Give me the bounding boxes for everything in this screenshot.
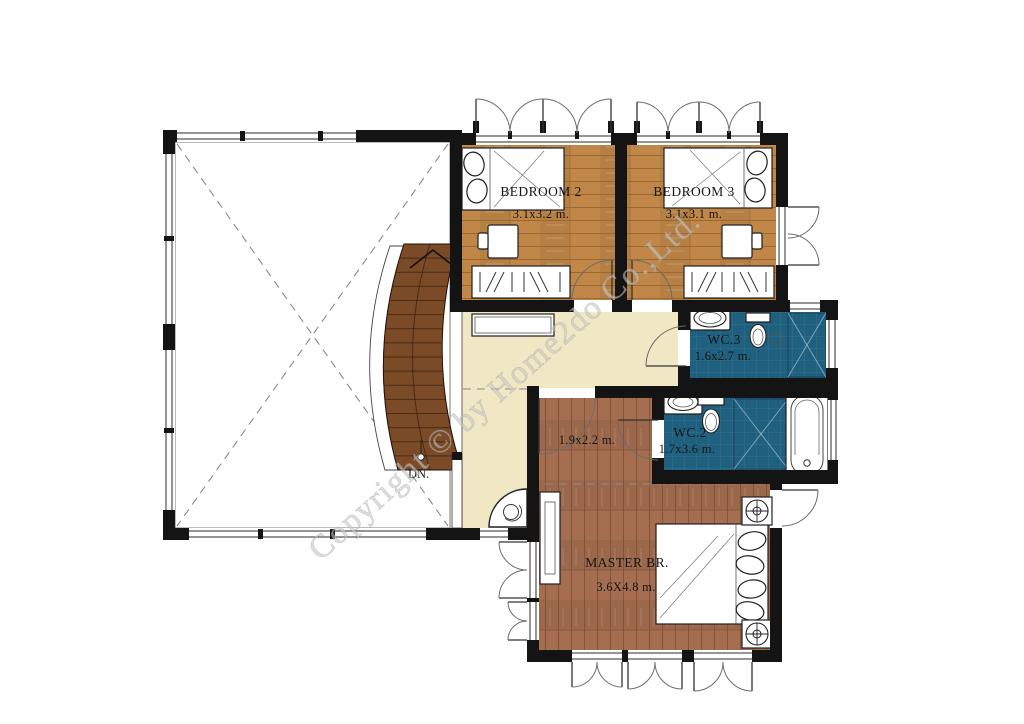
nightstand-lamp [742,620,772,648]
bedroom3-balcony-doors [788,207,819,265]
bed2-desk [488,225,518,258]
bed3-chair [752,233,762,249]
wc2-dims: 1.7x3.6 m. [659,442,715,456]
bedroom2-label: BEDROOM 2 [500,184,581,199]
hall-void-railing [452,452,462,528]
floor-plan-page: DN. [0,0,1024,724]
bed2-wardrobe [472,266,570,298]
nightstand-lamp [742,497,772,525]
wc3-dims: 1.6x2.7 m. [695,349,751,363]
bathtub [786,390,828,480]
bed3-desk [722,225,752,258]
wc3-toilet [750,325,766,348]
floor-plan-svg: DN. [0,0,1024,724]
master-window-swings [572,662,752,691]
master-balcony-door [782,490,818,526]
master-left-window-swings [499,542,527,640]
bedroom3-label: BEDROOM 3 [653,184,734,199]
master-tv-console [540,492,560,584]
master-dims: 3.6X4.8 m. [596,580,655,594]
dressing-dims: 1.9x2.2 m. [559,433,615,447]
wc2-label: WC.2 [673,425,706,440]
wc3-label: WC.3 [707,332,740,347]
bedroom2-dims: 3.1x3.2 m. [513,207,569,221]
bed3-wardrobe [684,266,774,298]
master-label: MASTER BR. [585,555,669,570]
wc3-toilet-tank [746,313,770,322]
bedroom-window-swings [476,99,760,133]
bed2-chair [478,233,488,249]
